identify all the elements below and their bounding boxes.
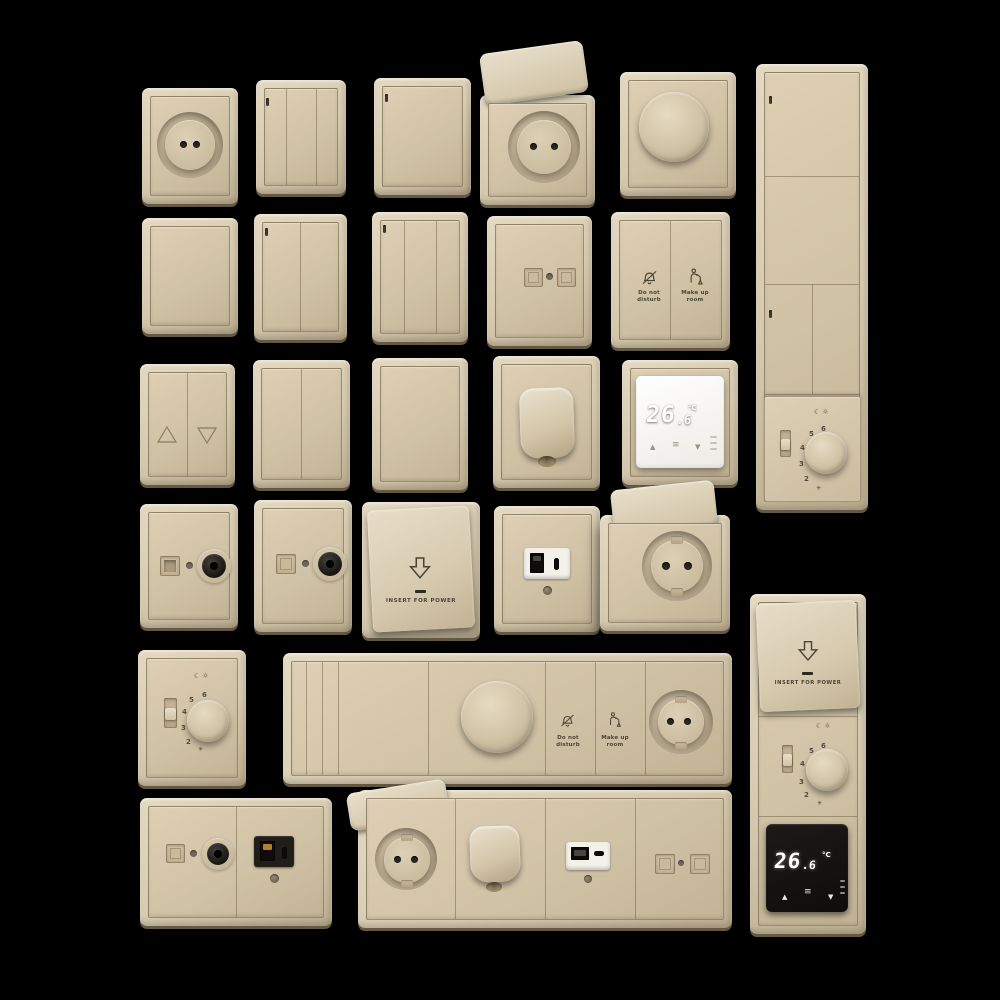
menu-icon: ≡ xyxy=(672,441,680,450)
rocker-area xyxy=(264,88,338,186)
status-led-slot xyxy=(415,590,426,593)
dial-number: 5 xyxy=(809,747,814,755)
dial-number: 2 xyxy=(186,738,191,746)
fixing-screw xyxy=(543,586,552,595)
rj-jack xyxy=(690,854,710,874)
mur-label: Make up room xyxy=(673,290,717,304)
blinds-up-icon xyxy=(156,424,178,445)
sun-icon: ☼ xyxy=(824,722,832,730)
switch-2gang xyxy=(253,360,350,488)
switch-1gang xyxy=(142,218,238,334)
dial-number: 4 xyxy=(800,444,805,452)
switch-2gang-led xyxy=(254,214,347,340)
ground-clip xyxy=(401,880,413,887)
fixing-screw xyxy=(546,273,553,280)
dial-number: 2 xyxy=(804,791,809,799)
indicator-led xyxy=(385,94,388,102)
rocker-area xyxy=(380,220,460,334)
rocker-area xyxy=(380,366,460,482)
dimmer-rotary xyxy=(620,72,736,196)
mode-slider xyxy=(780,430,791,457)
frost-icon: ✳ xyxy=(198,746,203,753)
slider-knob xyxy=(165,708,176,721)
tall-panel-switch-dial: ☾☼ 6 5 4 3 2 ✳ xyxy=(756,64,868,510)
switch-1gang xyxy=(372,358,468,490)
dimmer-knob xyxy=(639,92,709,162)
ground-clip xyxy=(675,742,687,749)
make-up-room-icon xyxy=(605,710,624,729)
cable-spout xyxy=(469,825,521,883)
rj-jack xyxy=(655,854,675,874)
pin-hole xyxy=(530,143,537,150)
combo-panel-dimmer-dnd-socket: Do not disturb Make up room xyxy=(283,653,732,784)
temperature-unit: °C xyxy=(822,852,831,859)
pin-hole xyxy=(662,562,670,570)
dial-mode-icons: ☾☼ xyxy=(816,722,833,730)
switch-1gang-led xyxy=(374,78,471,195)
socket-2pin xyxy=(142,88,238,204)
temp-down-button: ▼ xyxy=(695,444,700,451)
pin-hole xyxy=(551,143,558,150)
pin-hole xyxy=(684,562,692,570)
combo-panel-socket-cable-usb-data xyxy=(358,790,732,928)
dial-number: 4 xyxy=(800,760,805,768)
fixing-screw xyxy=(186,562,193,569)
ground-clip xyxy=(671,536,683,544)
frost-icon: ✳ xyxy=(817,800,822,807)
tv-data-socket-open xyxy=(140,504,238,628)
thermostat-dial-plate: ☾☼ 6 5 4 3 2 ✳ xyxy=(138,650,246,786)
fixing-screw xyxy=(302,560,309,567)
switch-3gang-vertical xyxy=(256,80,346,194)
mur-label: Make up room xyxy=(593,735,637,749)
pin-hole xyxy=(667,718,674,725)
slider-knob xyxy=(783,754,792,766)
switch-3gang-led xyxy=(372,212,468,342)
rj-jack-open xyxy=(160,556,180,576)
usb-charger-socket xyxy=(494,506,600,632)
socket-face xyxy=(658,699,704,745)
key-card-holder: INSERT FOR POWER xyxy=(362,502,480,638)
socket-flip-lid xyxy=(480,95,595,205)
ground-clip xyxy=(675,696,687,703)
socket-face xyxy=(165,120,215,170)
frost-icon: ✳ xyxy=(816,485,821,492)
insert-for-power-label: INSERT FOR POWER xyxy=(371,598,471,604)
cable-hole xyxy=(486,882,502,892)
thermostat-display: °C 26.6 ▲ ≡ ▼ xyxy=(636,376,724,468)
side-vents xyxy=(840,880,845,882)
schuko-socket-flip-lid xyxy=(600,515,730,631)
pin-hole xyxy=(193,141,200,148)
dnd-label: Do not disturb xyxy=(627,290,671,304)
dnd-label: Do not disturb xyxy=(546,735,590,749)
side-vents xyxy=(710,436,717,438)
do-not-disturb-icon xyxy=(639,267,660,288)
indicator-led xyxy=(266,98,269,106)
fixing-screw xyxy=(190,850,197,857)
insert-card-arrow-icon xyxy=(794,636,822,666)
dial-number: 5 xyxy=(809,430,814,438)
pin-hole xyxy=(411,856,418,863)
insert-for-power-label: INSERT FOR POWER xyxy=(758,680,858,686)
socket-face xyxy=(517,120,571,174)
combo-tv-usb-panel xyxy=(140,798,332,926)
indicator-led xyxy=(769,96,772,104)
product-grid: ☾☼ 6 5 4 3 2 ✳ xyxy=(0,0,1000,1000)
dial-knob xyxy=(806,749,848,791)
sun-icon: ☼ xyxy=(202,672,210,680)
dial-knob xyxy=(187,700,229,742)
rocker-area xyxy=(382,86,463,187)
ground-clip xyxy=(671,588,683,596)
data-socket-double xyxy=(487,216,592,346)
dial-number: 4 xyxy=(182,708,187,716)
dial-number: 6 xyxy=(821,742,826,750)
indicator-led xyxy=(383,225,386,233)
mode-slider xyxy=(782,745,793,773)
socket-lid xyxy=(479,40,589,106)
pin-hole xyxy=(180,141,187,148)
cable-outlet xyxy=(493,356,600,488)
blinds-down-icon xyxy=(196,424,218,445)
temperature-reading: 26.6 xyxy=(773,851,817,872)
dnd-mur-switch: Do not disturb Make up room xyxy=(611,212,730,348)
dial-number: 6 xyxy=(821,425,826,433)
fixing-screw xyxy=(584,875,592,883)
slider-knob xyxy=(781,439,790,450)
blinds-switch xyxy=(140,364,235,485)
rocker-area xyxy=(150,226,230,326)
rj-jack xyxy=(166,844,185,863)
temp-down-button: ▼ xyxy=(828,894,833,901)
dial-number: 3 xyxy=(181,724,186,732)
rj-jack xyxy=(524,268,543,287)
usb-c-port xyxy=(554,558,559,570)
thermostat-white: °C 26.6 ▲ ≡ ▼ xyxy=(622,360,738,485)
dimmer-knob xyxy=(461,681,533,753)
menu-icon: ≡ xyxy=(804,888,812,897)
cable-hole xyxy=(538,456,556,467)
ground-clip xyxy=(401,834,413,841)
insert-card-arrow-icon xyxy=(405,552,435,584)
dial-mode-icons: ☾☼ xyxy=(194,672,211,680)
pin-hole xyxy=(684,718,691,725)
usb-c-port xyxy=(282,847,287,859)
usb-c-port xyxy=(594,851,604,856)
dial-number: 2 xyxy=(804,475,809,483)
tall-panel-card-dial-thermostat: INSERT FOR POWER ☾☼ 6 5 4 3 2 ✳ °C 26.6 … xyxy=(750,594,866,934)
mode-slider xyxy=(164,698,177,728)
thermostat-display-black: °C 26.6 ▲ ≡ ▼ xyxy=(766,824,848,912)
socket-face xyxy=(384,837,430,883)
rj-jack xyxy=(276,554,296,574)
fixing-screw xyxy=(270,874,279,883)
tv-data-socket-covered xyxy=(254,500,352,632)
indicator-led xyxy=(769,310,772,318)
dial-number: 3 xyxy=(799,460,804,468)
make-up-room-icon xyxy=(685,266,706,287)
do-not-disturb-icon xyxy=(558,711,577,730)
cable-spout xyxy=(519,387,575,459)
temp-up-button: ▲ xyxy=(650,444,655,451)
indicator-led xyxy=(265,228,268,236)
sun-icon: ☼ xyxy=(822,408,830,416)
dial-number: 3 xyxy=(799,778,804,786)
dial-mode-icons: ☾☼ xyxy=(814,408,831,416)
status-led-slot xyxy=(802,672,813,675)
dial-number: 5 xyxy=(189,696,194,704)
socket-face xyxy=(651,540,703,592)
dial-knob xyxy=(805,432,847,474)
temp-up-button: ▲ xyxy=(782,894,787,901)
fixing-screw xyxy=(678,860,684,866)
rj-jack xyxy=(557,268,576,287)
pin-hole xyxy=(394,856,401,863)
temperature-reading: 26.6 xyxy=(645,404,693,427)
dial-number: 6 xyxy=(202,691,207,699)
